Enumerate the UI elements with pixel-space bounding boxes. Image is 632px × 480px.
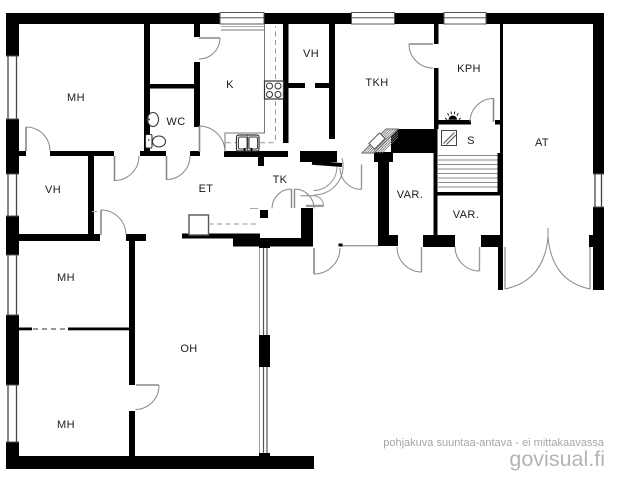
svg-text:VH: VH — [303, 48, 319, 60]
svg-text:VAR.: VAR. — [453, 209, 479, 221]
svg-text:MH: MH — [57, 272, 75, 284]
svg-text:OH: OH — [180, 343, 197, 355]
svg-text:MH: MH — [67, 92, 85, 104]
svg-text:AT: AT — [535, 137, 549, 149]
svg-text:K: K — [226, 79, 234, 91]
svg-text:VH: VH — [45, 184, 61, 196]
svg-text:ET: ET — [199, 183, 214, 195]
svg-text:TK: TK — [273, 174, 288, 186]
svg-text:TKH: TKH — [365, 77, 388, 89]
svg-text:MH: MH — [57, 419, 75, 431]
svg-text:WC: WC — [166, 116, 185, 128]
svg-text:S: S — [467, 135, 475, 147]
svg-text:VAR.: VAR. — [397, 189, 423, 201]
svg-text:KPH: KPH — [457, 63, 481, 75]
svg-text:govisual.fi: govisual.fi — [509, 447, 605, 471]
